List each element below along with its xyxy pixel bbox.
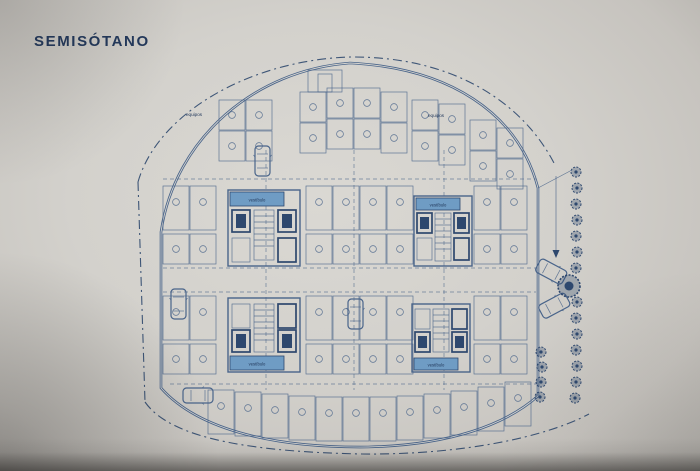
stair-core-top-right: vestíbulo xyxy=(414,196,472,266)
building-outline xyxy=(161,63,538,447)
core-label: vestíbulo xyxy=(428,363,445,368)
car-icon xyxy=(183,387,213,405)
storage-rooms-bottom-band xyxy=(208,382,531,441)
stair-core-bottom-left: vestíbulo xyxy=(228,298,300,372)
stair-core-bottom-right: vestíbulo xyxy=(412,304,470,372)
core-label: vestíbulo xyxy=(249,198,266,203)
photographed-plan-sheet: SEMISÓTANO xyxy=(0,0,700,471)
core-label: vestíbulo xyxy=(430,203,447,208)
property-boundary-line xyxy=(138,57,589,454)
equipos-label-left: equipos xyxy=(186,112,203,117)
equipos-label-right: equipos xyxy=(428,113,445,118)
car-icon xyxy=(347,299,365,329)
stair-core-top-left: vestíbulo xyxy=(228,190,300,266)
entrance-roundabout xyxy=(558,275,580,297)
entrance-arrow xyxy=(538,170,572,258)
storage-rooms-lower-rows xyxy=(163,296,527,374)
stair xyxy=(433,309,449,352)
roof-access-structure xyxy=(308,70,342,92)
core-label: vestíbulo xyxy=(249,362,266,367)
stair xyxy=(254,210,274,260)
floor-plan-drawing: equipos equipos xyxy=(0,0,700,471)
